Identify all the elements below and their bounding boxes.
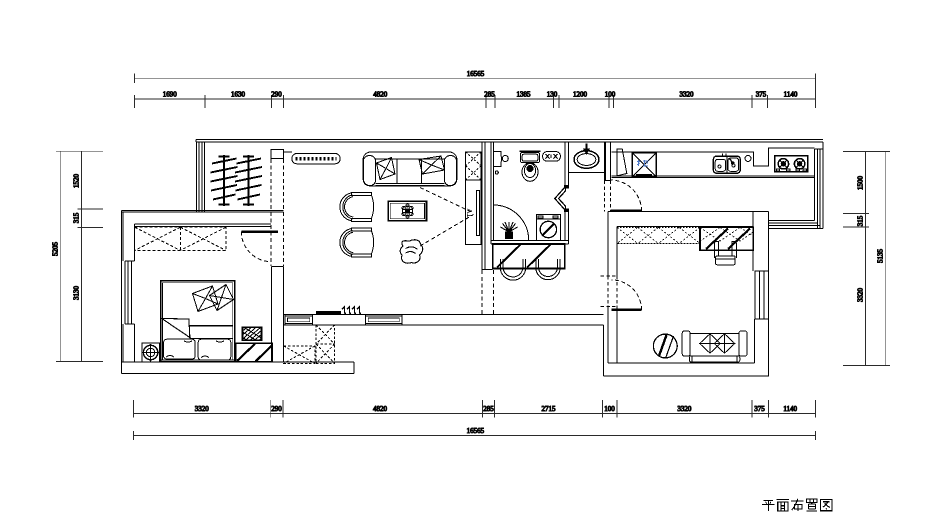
svg-text:375: 375 [756, 91, 767, 99]
svg-text:315: 315 [73, 212, 81, 223]
svg-text:290: 290 [271, 91, 282, 99]
svg-text:315: 315 [857, 215, 865, 226]
svg-text:1690: 1690 [163, 91, 178, 99]
svg-text:1630: 1630 [231, 91, 246, 99]
svg-text:16565: 16565 [467, 70, 485, 78]
svg-text:290: 290 [271, 405, 282, 413]
svg-text:285: 285 [484, 91, 495, 99]
svg-text:1500: 1500 [857, 176, 865, 191]
svg-text:3320: 3320 [195, 405, 210, 413]
svg-text:130: 130 [547, 91, 558, 99]
svg-text:1140: 1140 [784, 91, 798, 99]
svg-text:5205: 5205 [52, 242, 60, 257]
svg-text:1200: 1200 [573, 91, 588, 99]
svg-text:1385: 1385 [517, 91, 532, 99]
svg-text:3320: 3320 [677, 405, 692, 413]
svg-text:4820: 4820 [373, 405, 388, 413]
svg-text:100: 100 [604, 405, 615, 413]
svg-text:3320: 3320 [857, 288, 865, 303]
svg-text:5135: 5135 [877, 249, 885, 264]
svg-text:1520: 1520 [73, 174, 81, 189]
svg-text:4820: 4820 [373, 91, 388, 99]
svg-text:100: 100 [605, 91, 616, 99]
svg-text:16565: 16565 [467, 427, 485, 435]
svg-text:1140: 1140 [783, 405, 797, 413]
svg-text:TV: TV [467, 208, 474, 217]
svg-text:375: 375 [754, 405, 765, 413]
svg-text:3130: 3130 [73, 286, 81, 301]
svg-text:285: 285 [483, 405, 494, 413]
svg-text:3320: 3320 [680, 91, 695, 99]
svg-text:2715: 2715 [542, 405, 557, 413]
